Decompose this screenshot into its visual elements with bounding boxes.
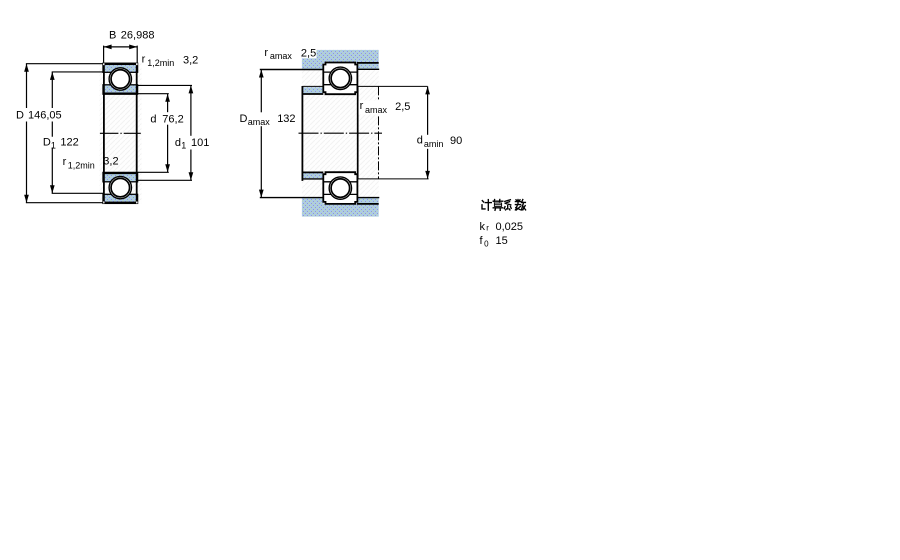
svg-text:r: r — [63, 156, 67, 168]
svg-text:1: 1 — [51, 140, 56, 150]
svg-text:2,5: 2,5 — [301, 47, 316, 59]
svg-text:90: 90 — [450, 135, 462, 147]
svg-text:amax: amax — [365, 105, 388, 115]
svg-text:B: B — [109, 30, 116, 42]
svg-text:k: k — [480, 221, 486, 233]
svg-text:76,2: 76,2 — [162, 114, 183, 126]
svg-text:122: 122 — [60, 136, 78, 148]
svg-text:d: d — [150, 114, 156, 126]
svg-text:15: 15 — [496, 235, 508, 247]
svg-text:amin: amin — [424, 139, 444, 149]
svg-text:3,2: 3,2 — [103, 155, 118, 167]
svg-text:132: 132 — [277, 113, 295, 125]
svg-text:r: r — [264, 47, 268, 59]
svg-text:d: d — [175, 137, 181, 149]
svg-text:1,2min: 1,2min — [68, 161, 95, 171]
svg-text:1: 1 — [181, 141, 186, 151]
svg-text:3,2: 3,2 — [183, 54, 198, 66]
svg-text:r: r — [360, 100, 364, 112]
svg-text:amax: amax — [248, 117, 271, 127]
svg-text:2,5: 2,5 — [395, 101, 410, 113]
svg-text:0,025: 0,025 — [496, 221, 524, 233]
svg-text:101: 101 — [191, 137, 209, 149]
svg-text:1,2min: 1,2min — [147, 58, 174, 68]
svg-text:d: d — [417, 135, 423, 147]
svg-text:D: D — [16, 110, 24, 122]
svg-text:D: D — [43, 136, 51, 148]
svg-text:r: r — [486, 224, 489, 233]
svg-text:0: 0 — [484, 239, 489, 248]
svg-text:146,05: 146,05 — [28, 110, 62, 122]
svg-text:amax: amax — [270, 51, 293, 61]
svg-text:D: D — [240, 113, 248, 125]
svg-text:26,988: 26,988 — [121, 30, 155, 42]
svg-text:r: r — [142, 54, 146, 66]
svg-text:f: f — [480, 235, 484, 247]
